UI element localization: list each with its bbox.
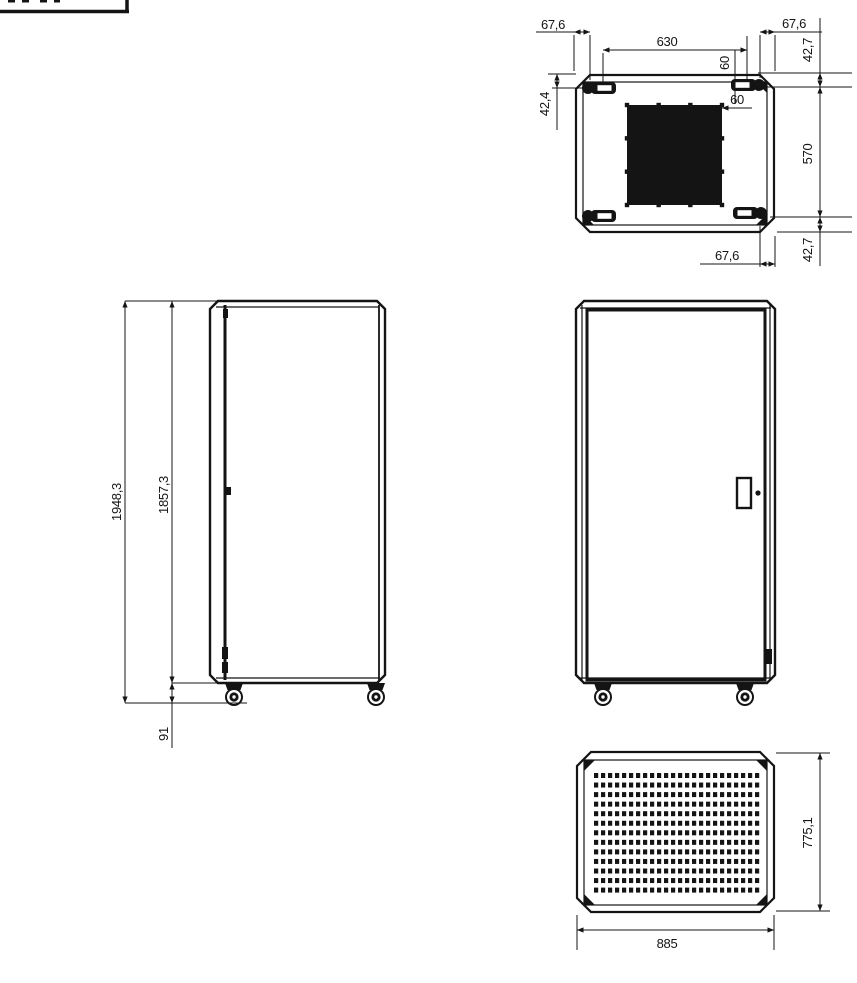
perforation-dot <box>685 859 689 864</box>
cutout-screw-dot <box>625 136 629 140</box>
perforation-dot <box>622 878 626 883</box>
perforation-dot <box>678 840 682 845</box>
perforation-dot <box>622 888 626 893</box>
perforation-dot <box>734 869 738 874</box>
cutout-screw-dot <box>688 203 692 207</box>
perforation-dot <box>734 773 738 778</box>
perforation-dot <box>601 849 605 854</box>
perforation-dot <box>615 869 619 874</box>
dim-tv-width: 885 <box>657 936 678 951</box>
perforation-dot <box>608 821 612 826</box>
perforation-dot <box>671 783 675 788</box>
perforation-dot <box>629 811 633 816</box>
bottom-view: 67,6 630 67,6 42,7 60 60 42,4 570 67,6 4… <box>536 16 852 267</box>
perforation-dot <box>664 792 668 797</box>
perforation-dot <box>720 811 724 816</box>
perforation-dot <box>594 859 598 864</box>
perforation-dot <box>650 878 654 883</box>
perforation-dot <box>713 773 717 778</box>
perforation-dot <box>741 878 745 883</box>
perforation-dot <box>755 840 759 845</box>
perforation-dot <box>643 840 647 845</box>
perforation-dot <box>615 783 619 788</box>
perforation-dot <box>678 821 682 826</box>
side-view: 1948,3 1857,3 91 <box>109 301 385 748</box>
caster-front-left <box>594 683 612 705</box>
perforation-dot <box>755 869 759 874</box>
caster-plan-bottom-right <box>733 207 767 219</box>
perforation-dot <box>601 811 605 816</box>
perforation-dot <box>734 830 738 835</box>
perforation-dot <box>664 859 668 864</box>
perforation-dot <box>706 811 710 816</box>
perforation-dot <box>622 783 626 788</box>
perforation-dot <box>734 811 738 816</box>
perforation-dot <box>629 821 633 826</box>
perforation-dot <box>608 811 612 816</box>
perforation-dot <box>657 878 661 883</box>
perforation-dot <box>692 849 696 854</box>
perforation-dot <box>706 878 710 883</box>
perforation-dot <box>615 802 619 807</box>
perforation-dot <box>727 869 731 874</box>
perforation-dot <box>692 821 696 826</box>
perforation-dot <box>643 811 647 816</box>
perforation-dot <box>755 888 759 893</box>
perforation-dot <box>734 802 738 807</box>
perforation-dot <box>706 859 710 864</box>
perforation-dot <box>608 802 612 807</box>
perforation-dot <box>685 888 689 893</box>
perforation-dot <box>671 830 675 835</box>
perforation-dot <box>713 802 717 807</box>
perforation-dot <box>629 888 633 893</box>
perforation-dot <box>615 859 619 864</box>
perforation-dot <box>650 830 654 835</box>
perforation-dot <box>755 811 759 816</box>
perforation-dot <box>594 849 598 854</box>
perforation-dot <box>608 888 612 893</box>
perforation-dot <box>706 869 710 874</box>
caster-plan-top-left <box>582 82 616 94</box>
perforation-dot <box>657 849 661 854</box>
perforation-dot <box>615 849 619 854</box>
perforation-dot <box>629 859 633 864</box>
perforation-dot <box>650 840 654 845</box>
perforation-dot <box>734 859 738 864</box>
perforation-dot <box>657 840 661 845</box>
door-lock-pin-side <box>226 487 231 495</box>
perforation-dot <box>601 859 605 864</box>
perforation-dot <box>622 830 626 835</box>
perforation-dot <box>692 792 696 797</box>
perforation-dot <box>685 783 689 788</box>
perforation-dot <box>671 849 675 854</box>
perforation-dot <box>671 840 675 845</box>
perforation-dot <box>727 773 731 778</box>
perforation-dot <box>664 869 668 874</box>
perforation-dot <box>601 792 605 797</box>
perforation-dot <box>678 849 682 854</box>
perforation-dot <box>643 849 647 854</box>
perforation-dot <box>650 869 654 874</box>
perforation-dot <box>629 783 633 788</box>
cutout-screw-dot <box>720 136 724 140</box>
perforation-dot <box>650 849 654 854</box>
cutout-screw-dot <box>625 103 629 107</box>
perforation-dot <box>636 783 640 788</box>
perforation-dot <box>643 830 647 835</box>
perforation-dot <box>706 888 710 893</box>
perforation-dot <box>678 859 682 864</box>
perforation-dot <box>650 802 654 807</box>
perforation-dot <box>622 792 626 797</box>
perforation-dot <box>615 830 619 835</box>
perforation-dot <box>741 830 745 835</box>
dim-tv-depth: 775,1 <box>800 817 815 848</box>
perforation-dot <box>685 840 689 845</box>
perforation-dot <box>636 821 640 826</box>
perforation-dot <box>720 802 724 807</box>
perforation-dot <box>601 783 605 788</box>
perforation-dot <box>706 792 710 797</box>
perforation-dot <box>720 888 724 893</box>
perforation-dot <box>692 888 696 893</box>
cutout-screw-dot <box>625 169 629 173</box>
perforation-dot <box>699 840 703 845</box>
perforation-dot <box>748 773 752 778</box>
perforation-dot <box>608 869 612 874</box>
perforation-dot <box>720 840 724 845</box>
dim-bv-bottom-right-inset: 42,7 <box>800 238 815 262</box>
perforation-dot <box>748 878 752 883</box>
perforation-dot <box>727 783 731 788</box>
perforation-dot <box>671 773 675 778</box>
perforation-dot <box>657 821 661 826</box>
perforation-dot <box>601 802 605 807</box>
perforation-dot <box>664 878 668 883</box>
perforation-dot <box>685 773 689 778</box>
cutout-screw-dot <box>720 203 724 207</box>
perforation-dot <box>692 773 696 778</box>
perforation-dot <box>657 773 661 778</box>
perforation-dot <box>636 792 640 797</box>
perforation-dot <box>643 773 647 778</box>
perforation-dot <box>629 878 633 883</box>
perforation-dot <box>622 849 626 854</box>
perforation-dot <box>699 802 703 807</box>
perforation-dot <box>706 830 710 835</box>
lower-hinge-mark-side-2 <box>222 662 228 673</box>
perforation-dot <box>685 878 689 883</box>
perforation-dot <box>706 773 710 778</box>
perforation-dot <box>720 878 724 883</box>
perforation-dot <box>594 888 598 893</box>
dim-sv-body-height: 1857,3 <box>156 476 171 514</box>
perforation-dot <box>650 888 654 893</box>
caster-front-right <box>736 683 754 705</box>
perforation-dot <box>713 840 717 845</box>
perforation-dot <box>748 869 752 874</box>
perforation-dot <box>706 821 710 826</box>
perforation-dot <box>685 802 689 807</box>
perforation-dot <box>720 773 724 778</box>
perforation-dot <box>706 783 710 788</box>
perforation-dot <box>678 869 682 874</box>
perforation-dot <box>636 878 640 883</box>
perforation-dot <box>727 840 731 845</box>
perforation-dot <box>643 802 647 807</box>
perforation-dot <box>622 821 626 826</box>
perforation-dot <box>615 811 619 816</box>
perforation-dot <box>608 783 612 788</box>
perforation-dot <box>741 792 745 797</box>
perforation-dot <box>699 869 703 874</box>
perforation-dot <box>643 821 647 826</box>
perforation-dot <box>741 859 745 864</box>
dim-bv-bottom-offset: 67,6 <box>715 248 739 263</box>
perforation-dot <box>699 792 703 797</box>
perforation-dot <box>755 878 759 883</box>
perforation-dot <box>692 811 696 816</box>
perforation-dot <box>706 802 710 807</box>
perforation-dot <box>727 888 731 893</box>
perforation-dot <box>734 783 738 788</box>
dim-sv-caster-height: 91 <box>156 727 171 741</box>
perforation-dot <box>650 792 654 797</box>
title-block-clipped <box>0 0 129 12</box>
perforation-dot <box>636 888 640 893</box>
dim-bv-top-right-inset: 42,7 <box>800 38 815 62</box>
front-view <box>576 301 775 705</box>
perforation-dot <box>622 840 626 845</box>
perforation-dot <box>699 783 703 788</box>
lower-hinge-mark-front <box>765 649 772 664</box>
dim-bv-left-inset: 42,4 <box>537 92 552 116</box>
perforation-dot <box>713 888 717 893</box>
perforation-dot <box>671 869 675 874</box>
drawing-sheet: 67,6 630 67,6 42,7 60 60 42,4 570 67,6 4… <box>0 0 857 983</box>
perforation-dot <box>650 811 654 816</box>
perforation-dot <box>615 792 619 797</box>
perforation-dot <box>608 792 612 797</box>
dim-bv-right-offset: 67,6 <box>782 16 806 31</box>
perforation-dot <box>664 849 668 854</box>
perforation-dot <box>685 792 689 797</box>
dim-bv-cutout-offset-h: 60 <box>730 92 744 107</box>
perforation-dot <box>713 783 717 788</box>
perforation-dot <box>755 849 759 854</box>
perforation-dot <box>601 869 605 874</box>
perforation-dot <box>741 849 745 854</box>
perforation-dot <box>594 878 598 883</box>
perforation-dot <box>594 821 598 826</box>
perforation-dot <box>692 859 696 864</box>
perforation-dot <box>748 840 752 845</box>
perforation-dot <box>748 888 752 893</box>
perforation-dot <box>594 840 598 845</box>
perforation-dot <box>671 878 675 883</box>
caster-side-right <box>367 683 385 705</box>
perforation-dot <box>657 811 661 816</box>
perforation-dot <box>664 811 668 816</box>
perforation-dot <box>734 878 738 883</box>
perforation-dot <box>699 830 703 835</box>
perforation-dot <box>608 830 612 835</box>
perforation-dot <box>755 859 759 864</box>
perforation-dot <box>594 773 598 778</box>
perforation-dot <box>755 783 759 788</box>
dim-sv-overall-height: 1948,3 <box>109 483 124 521</box>
perforation-dot <box>636 869 640 874</box>
dim-bv-cutout-offset-v: 60 <box>717 56 732 70</box>
perforation-dot <box>720 859 724 864</box>
perforation-dot <box>643 878 647 883</box>
cutout-screw-dot <box>625 203 629 207</box>
perforation-dot <box>664 783 668 788</box>
perforation-dot <box>727 859 731 864</box>
perforation-dot <box>685 811 689 816</box>
perforation-dot <box>713 830 717 835</box>
perforation-dot <box>622 859 626 864</box>
perforation-dot <box>601 840 605 845</box>
perforation-dot <box>650 783 654 788</box>
perforation-dot <box>748 849 752 854</box>
cutout-screw-dot <box>656 203 660 207</box>
perforation-dot <box>636 859 640 864</box>
perforation-dot <box>657 830 661 835</box>
perforation-dot <box>727 830 731 835</box>
perforation-dot <box>741 783 745 788</box>
perforation-dot <box>755 773 759 778</box>
perforation-dot <box>643 888 647 893</box>
perforation-dot <box>755 830 759 835</box>
perforation-dot <box>594 830 598 835</box>
perforation-dot <box>699 773 703 778</box>
perforation-dot <box>692 878 696 883</box>
perforation-dot <box>685 849 689 854</box>
perforation-dot <box>671 811 675 816</box>
perforation-dot <box>734 821 738 826</box>
perforation-dot <box>615 773 619 778</box>
perforation-dot <box>720 869 724 874</box>
perforation-dot <box>699 821 703 826</box>
perforation-dot <box>748 859 752 864</box>
caster-plan-bottom-left <box>582 210 616 222</box>
perforation-dot <box>699 859 703 864</box>
perforation-dot <box>622 802 626 807</box>
perforation-dot <box>601 773 605 778</box>
perforation-dot <box>741 802 745 807</box>
perforation-dot <box>615 878 619 883</box>
perforation-dot <box>734 792 738 797</box>
clipped-text-fragments <box>8 0 60 3</box>
perforation-dot <box>608 849 612 854</box>
perforation-dot <box>699 849 703 854</box>
perforation-dot <box>615 840 619 845</box>
perforation-dot <box>755 792 759 797</box>
perforation-dot <box>727 878 731 883</box>
perforation-dot <box>678 811 682 816</box>
perforation-dot <box>671 888 675 893</box>
perforation-dot <box>643 783 647 788</box>
perforation-dot <box>699 888 703 893</box>
perforation-dot <box>608 878 612 883</box>
perforation-dot <box>629 792 633 797</box>
perforation-dot <box>601 878 605 883</box>
perforation-dot <box>594 792 598 797</box>
perforation-dot <box>720 830 724 835</box>
perforation-dot <box>678 888 682 893</box>
perforation-dot <box>622 869 626 874</box>
lower-hinge-mark-side <box>222 647 228 659</box>
perforation-dot <box>692 869 696 874</box>
perforation-dot <box>636 811 640 816</box>
perforation-dot <box>748 792 752 797</box>
vent-cutout <box>627 105 722 205</box>
perforation-dot <box>664 773 668 778</box>
perforation-dot <box>713 792 717 797</box>
perforation-dot <box>734 840 738 845</box>
perforation-dot <box>643 792 647 797</box>
perforation-dot <box>720 849 724 854</box>
perforation-dot <box>594 869 598 874</box>
perforation-dot <box>685 830 689 835</box>
perforation-dot <box>755 802 759 807</box>
perforation-dot <box>727 849 731 854</box>
perforation-dot <box>741 821 745 826</box>
perforation-dot <box>636 849 640 854</box>
perforation-dot <box>671 792 675 797</box>
perforation-dot <box>720 792 724 797</box>
side-view-dimension-lines <box>125 301 352 748</box>
perforation-dot <box>629 773 633 778</box>
perforation-dot <box>692 840 696 845</box>
perforation-dot <box>601 821 605 826</box>
perforation-dot <box>643 869 647 874</box>
perforation-dot <box>678 878 682 883</box>
perforation-dot <box>706 849 710 854</box>
perforation-dot <box>650 859 654 864</box>
perforation-dot <box>741 840 745 845</box>
perforation-dot <box>629 840 633 845</box>
perforation-dot <box>629 849 633 854</box>
door-lock-pin <box>755 490 760 495</box>
perforation-dot <box>629 830 633 835</box>
perforation-dot <box>671 802 675 807</box>
perforation-dot <box>748 811 752 816</box>
perforation-dot <box>657 792 661 797</box>
caster-plan-top-right <box>731 79 765 91</box>
perforation-dot <box>748 830 752 835</box>
caster-side-left <box>225 683 243 705</box>
perforation-dot <box>657 859 661 864</box>
perforation-dot <box>636 773 640 778</box>
top-view: 775,1 885 <box>577 752 830 951</box>
cutout-screw-dot <box>688 103 692 107</box>
dim-bv-caster-span-depth: 570 <box>800 144 815 165</box>
door-handle <box>737 478 751 508</box>
perforation-dot <box>720 821 724 826</box>
perforation-dot <box>594 811 598 816</box>
perforation-dot <box>657 888 661 893</box>
perforation-dot <box>713 869 717 874</box>
perforation-dot <box>678 830 682 835</box>
perforation-dot <box>678 802 682 807</box>
perforation-dot <box>748 821 752 826</box>
perforation-dot <box>636 802 640 807</box>
perforation-dot <box>713 878 717 883</box>
